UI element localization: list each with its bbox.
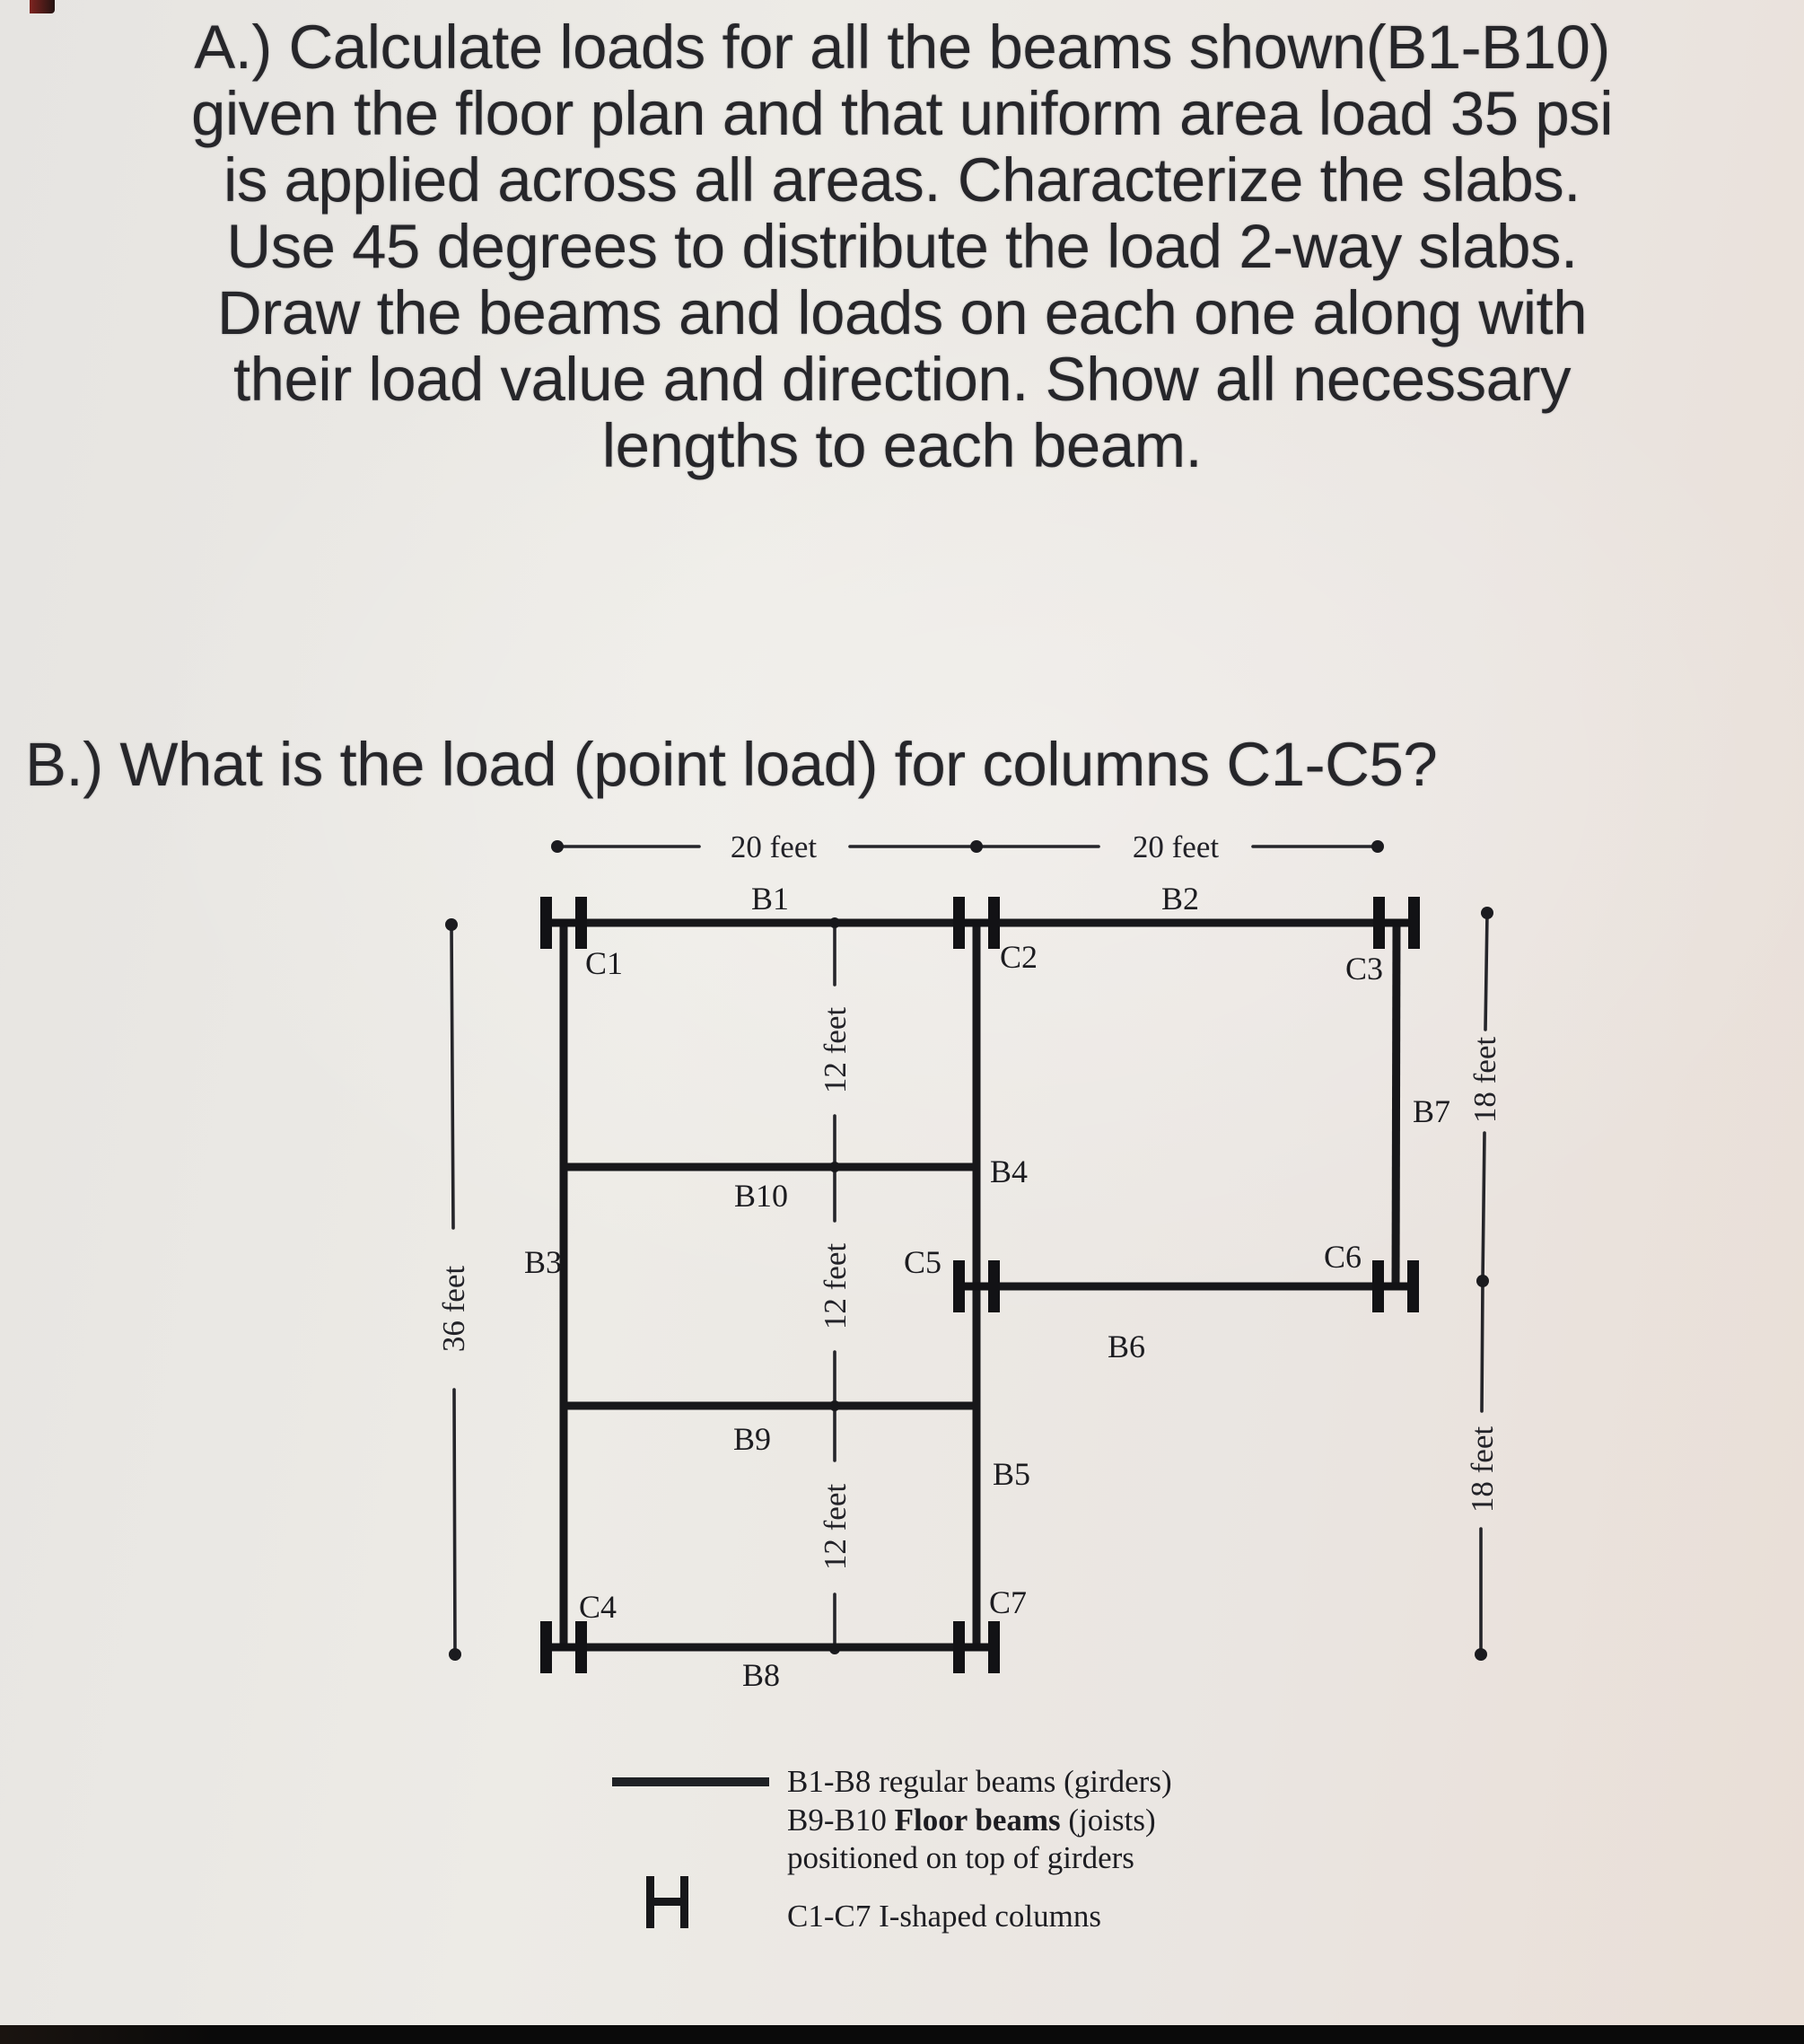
worksheet-page: A.) Calculate loads for all the beams sh… (0, 0, 1804, 2044)
dim-mid-3-label: 12 feet (818, 1484, 853, 1570)
dim-left-label: 36 feet (436, 1266, 471, 1352)
beam-b1-label: B1 (751, 881, 789, 917)
beam-b5-label: B5 (993, 1456, 1030, 1492)
dim-mid-1-label: 12 feet (818, 1007, 853, 1093)
dimension-top: 20 feet 20 feet (551, 829, 1384, 864)
dimension-middle: 12 feet 12 feet 12 feet (818, 917, 853, 1654)
legend-joists-text: B9-B10 Floor beams (joists) (787, 1803, 1156, 1838)
column-c5-label: C5 (904, 1244, 941, 1280)
column-c7-label: C7 (989, 1584, 1027, 1620)
beam-b10-label: B10 (734, 1178, 788, 1214)
legend-column-symbol (646, 1876, 688, 1928)
dimension-right: 18 feet 18 feet (1465, 907, 1502, 1661)
dim-right-1-label: 18 feet (1467, 1037, 1502, 1123)
legend-joists-prefix: B9-B10 (787, 1803, 895, 1838)
beam-b3-label: B3 (524, 1244, 562, 1280)
column-c3-label: C3 (1345, 951, 1383, 987)
dim-top-left-label: 20 feet (731, 829, 817, 864)
legend-joists-suffix: (joists) (1061, 1803, 1156, 1838)
legend-columns-text: C1-C7 I-shaped columns (787, 1899, 1101, 1934)
legend-joists-bold: Floor beams (895, 1803, 1061, 1838)
column-c4-label: C4 (579, 1589, 617, 1625)
floor-plan-diagram: 20 feet 20 feet 36 feet 12 feet 12 feet (0, 0, 1804, 2044)
dim-right-2-label: 18 feet (1465, 1426, 1500, 1513)
legend-girders-text: B1-B8 regular beams (girders) (787, 1764, 1172, 1800)
dimension-left: 36 feet (436, 918, 471, 1661)
legend-joists-note: positioned on top of girders (787, 1840, 1134, 1876)
column-c1-label: C1 (585, 945, 623, 981)
column-c2-label: C2 (1000, 939, 1038, 975)
beam-b9-label: B9 (733, 1421, 771, 1457)
dim-mid-2-label: 12 feet (818, 1243, 853, 1329)
beam-b6-label: B6 (1108, 1329, 1145, 1364)
photo-bottom-edge (0, 2025, 1804, 2044)
dim-top-right-label: 20 feet (1133, 829, 1219, 864)
beam-b7-line (1396, 923, 1397, 1286)
beam-b2-label: B2 (1161, 881, 1199, 917)
beam-b7-label: B7 (1413, 1093, 1450, 1129)
beam-b8-label: B8 (742, 1657, 780, 1693)
beam-b4-label: B4 (990, 1154, 1028, 1189)
column-c6-label: C6 (1324, 1239, 1362, 1275)
